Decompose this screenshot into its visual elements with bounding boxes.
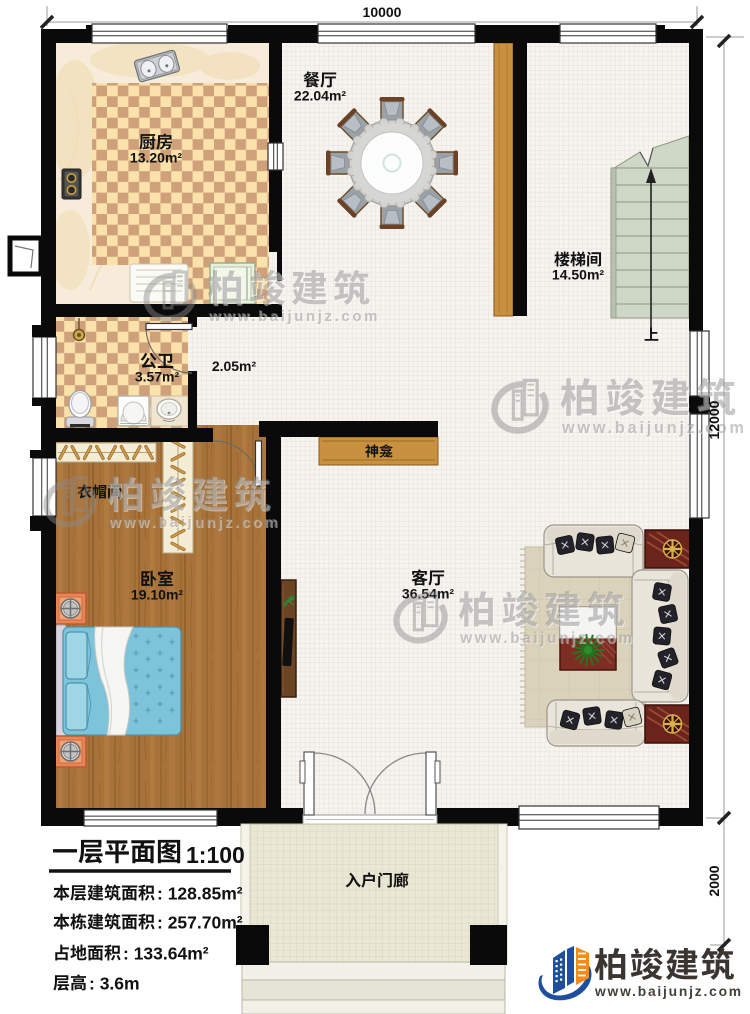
svg-text:1:100: 1:100 xyxy=(186,842,245,868)
svg-text:2.05m²: 2.05m² xyxy=(212,358,257,374)
svg-text:www.baijunjz.com: www.baijunjz.com xyxy=(459,630,634,647)
svg-text:12000: 12000 xyxy=(706,400,722,439)
svg-text:13.20m²: 13.20m² xyxy=(130,150,182,166)
svg-text:3.57m²: 3.57m² xyxy=(135,369,180,385)
svg-text:: 257.70m²: : 257.70m² xyxy=(157,913,243,933)
svg-text:22.04m²: 22.04m² xyxy=(294,88,346,104)
svg-text:10000: 10000 xyxy=(363,4,402,20)
svg-text:: 133.64m²: : 133.64m² xyxy=(123,944,209,964)
svg-text:www.baijunjz.com: www.baijunjz.com xyxy=(208,308,380,325)
svg-text:14.50m²: 14.50m² xyxy=(552,267,604,283)
svg-text:2000: 2000 xyxy=(706,865,722,896)
svg-text:: 3.6m: : 3.6m xyxy=(89,974,140,994)
svg-text:: 128.85m²: : 128.85m² xyxy=(157,884,243,904)
svg-text:www.baijunjz.com: www.baijunjz.com xyxy=(594,984,743,999)
svg-text:19.10m²: 19.10m² xyxy=(131,587,183,603)
svg-text:www.baijunjz.com: www.baijunjz.com xyxy=(108,514,280,531)
